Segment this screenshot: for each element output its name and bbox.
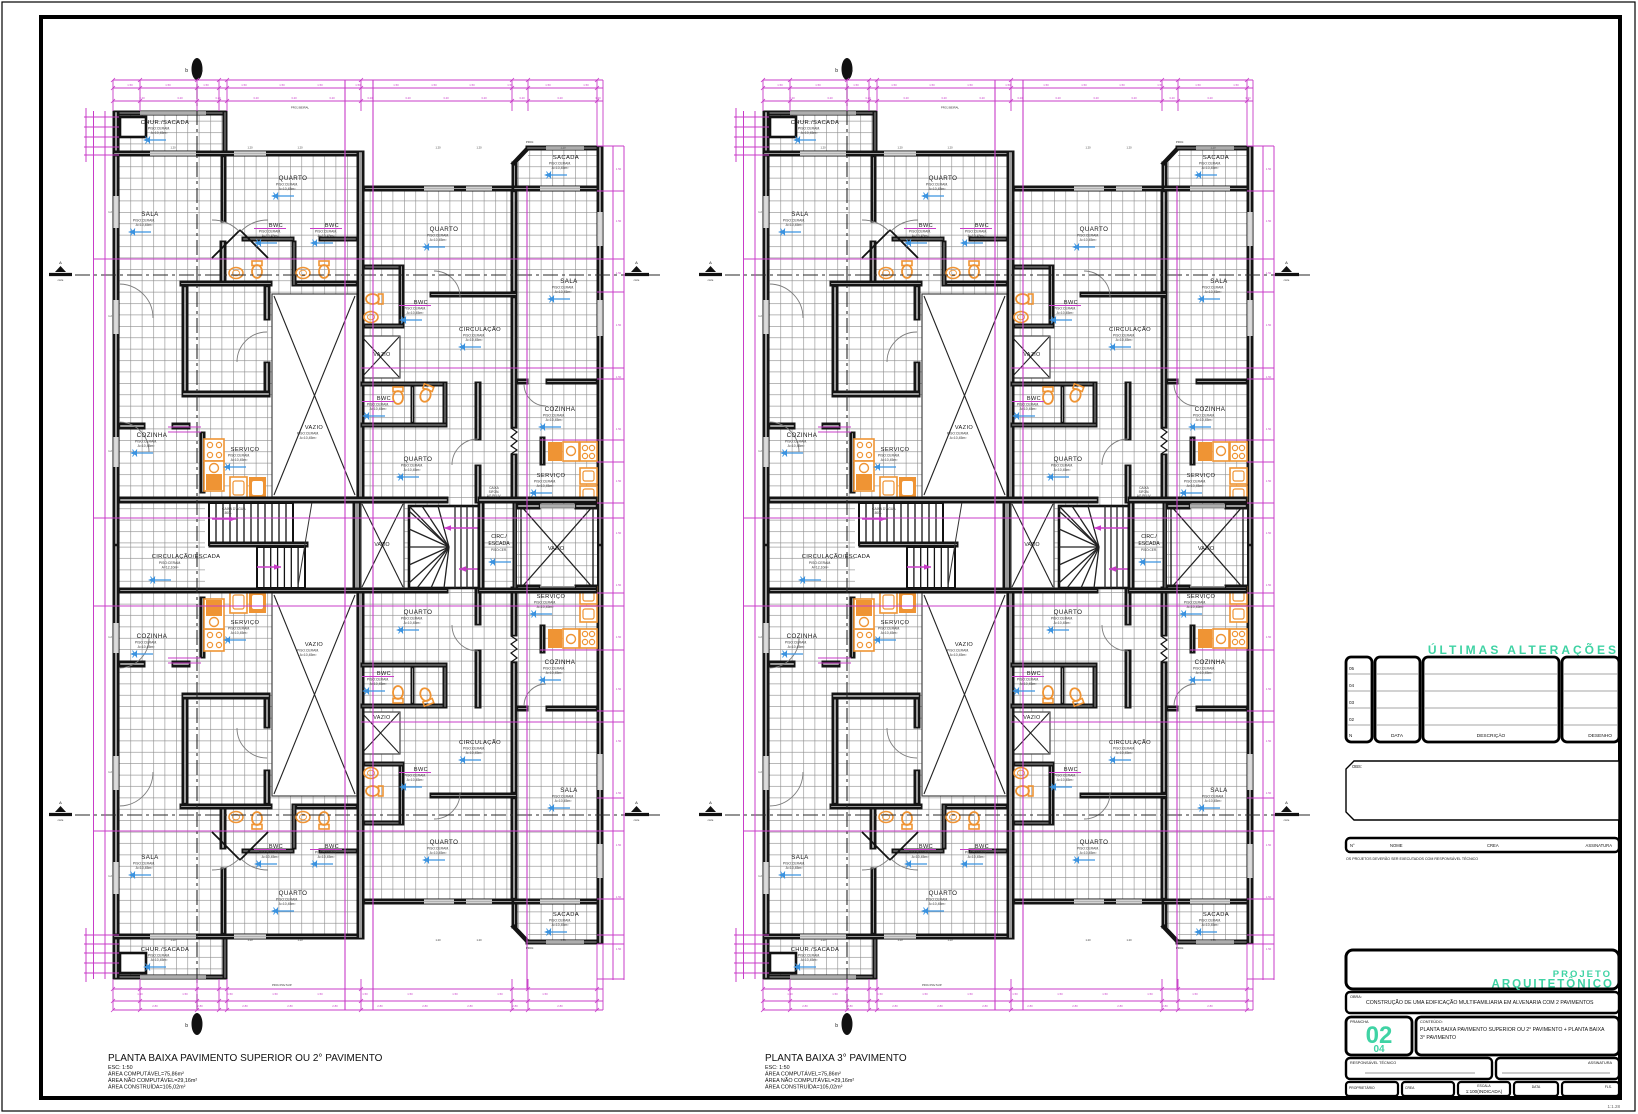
svg-text:DATA: DATA (1391, 733, 1404, 739)
svg-text:3° PAVIMENTO: 3° PAVIMENTO (1420, 1035, 1456, 1041)
svg-text:DESENHO: DESENHO (1588, 733, 1612, 739)
svg-text:04: 04 (1349, 683, 1355, 688)
svg-text:OS PROJETOS DEVERÃO SER EXECUT: OS PROJETOS DEVERÃO SER EXECUTADOS COM R… (1346, 856, 1478, 861)
svg-text:ESCALA: ESCALA (1477, 1084, 1491, 1088)
svg-text:PLANTA BAIXA PAVIMENTO SUPERIO: PLANTA BAIXA PAVIMENTO SUPERIOR OU 2° PA… (108, 1053, 383, 1064)
svg-text:OBRA:: OBRA: (1350, 995, 1362, 999)
svg-text:02: 02 (1349, 717, 1355, 722)
svg-text:ÁREA COMPUTÁVEL=75,86m²: ÁREA COMPUTÁVEL=75,86m² (108, 1071, 184, 1078)
svg-text:ÚLTIMAS ALTERAÇÕES: ÚLTIMAS ALTERAÇÕES (1428, 642, 1619, 657)
svg-text:ÁREA NÃO COMPUTÁVEL=29,16m²: ÁREA NÃO COMPUTÁVEL=29,16m² (765, 1077, 854, 1084)
svg-text:ASSINATURA: ASSINATURA (1588, 1061, 1612, 1065)
svg-text:OBS:: OBS: (1352, 764, 1362, 769)
svg-text:DATA: DATA (1532, 1085, 1541, 1089)
svg-text:ASSINATURA: ASSINATURA (1586, 843, 1613, 848)
svg-text:FLS.: FLS. (1605, 1085, 1612, 1089)
svg-text:PLANTA BAIXA 3° PAVIMENTO: PLANTA BAIXA 3° PAVIMENTO (765, 1053, 907, 1064)
svg-text:CREA: CREA (1487, 843, 1499, 848)
svg-text:RESPONSÁVEL TÉCNICO: RESPONSÁVEL TÉCNICO (1350, 1060, 1396, 1065)
svg-text:ESC: 1:50: ESC: 1:50 (108, 1065, 133, 1071)
svg-text:ÁREA CONSTRUÍDA=105,02m²: ÁREA CONSTRUÍDA=105,02m² (765, 1084, 843, 1091)
svg-text:05: 05 (1349, 666, 1355, 671)
svg-text:ÁREA CONSTRUÍDA=105,02m²: ÁREA CONSTRUÍDA=105,02m² (108, 1084, 186, 1091)
svg-text:ARQUITETÔNICO: ARQUITETÔNICO (1492, 978, 1614, 991)
svg-text:N: N (1349, 733, 1352, 738)
svg-text:ÁREA NÃO COMPUTÁVEL=29,16m²: ÁREA NÃO COMPUTÁVEL=29,16m² (108, 1077, 197, 1084)
svg-text:CONTEÚDO:: CONTEÚDO: (1420, 1019, 1443, 1024)
svg-text:PROPRIETÁRIO: PROPRIETÁRIO (1349, 1086, 1375, 1090)
svg-text:ÁREA COMPUTÁVEL=75,86m²: ÁREA COMPUTÁVEL=75,86m² (765, 1071, 841, 1078)
svg-text:1:1.28: 1:1.28 (1607, 1104, 1620, 1109)
svg-text:03: 03 (1349, 700, 1355, 705)
svg-text:1:100(INDICADA): 1:100(INDICADA) (1466, 1089, 1503, 1094)
svg-text:ESC: 1:50: ESC: 1:50 (765, 1065, 790, 1071)
svg-text:DESCRIÇÃO: DESCRIÇÃO (1477, 732, 1506, 739)
svg-text:NOME: NOME (1390, 843, 1403, 848)
svg-text:04: 04 (1373, 1044, 1385, 1055)
svg-text:PLANTA BAIXA PAVIMENTO SUPERIO: PLANTA BAIXA PAVIMENTO SUPERIOR OU 2° PA… (1420, 1027, 1605, 1033)
svg-text:CREA: CREA (1405, 1086, 1415, 1090)
svg-text:N°: N° (1350, 843, 1355, 848)
svg-text:CONSTRUÇÃO DE UMA EDIFICAÇÃO M: CONSTRUÇÃO DE UMA EDIFICAÇÃO MULTIFAMILI… (1366, 999, 1594, 1006)
